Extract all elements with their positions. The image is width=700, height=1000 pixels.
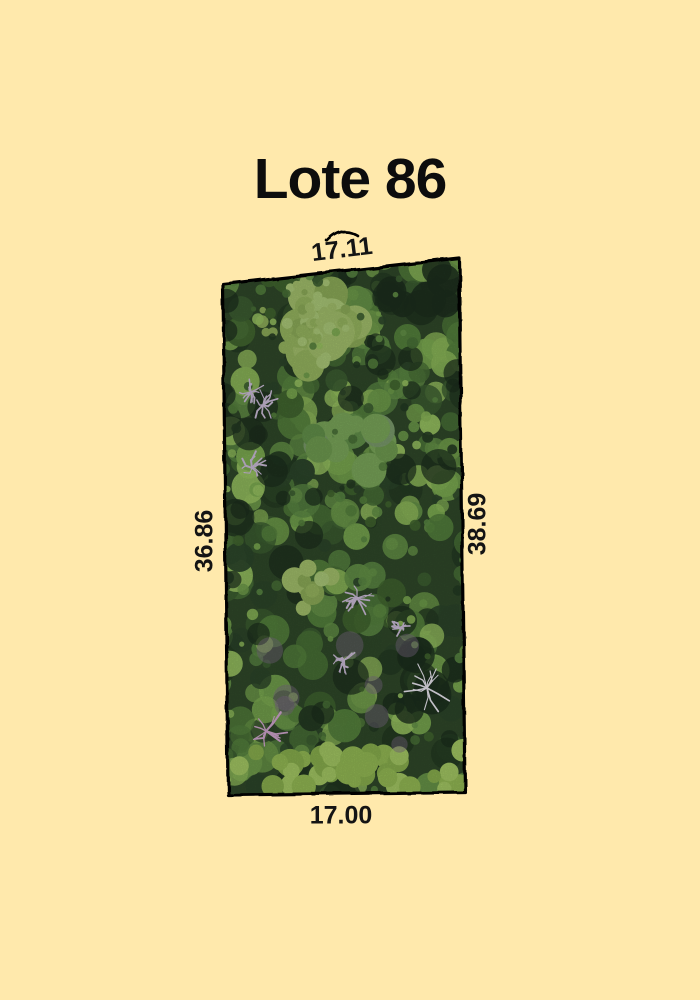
photo-grain-texture — [210, 245, 475, 805]
aerial-forest-photo — [202, 234, 484, 818]
dimension-label-right: 38.69 — [464, 493, 493, 556]
dimension-label-bottom: 17.00 — [310, 802, 373, 831]
lot-diagram — [0, 0, 700, 1000]
page: Lote 86 17.11 36.86 38.69 17.00 — [0, 0, 700, 1000]
dimension-label-left: 36.86 — [191, 510, 220, 573]
